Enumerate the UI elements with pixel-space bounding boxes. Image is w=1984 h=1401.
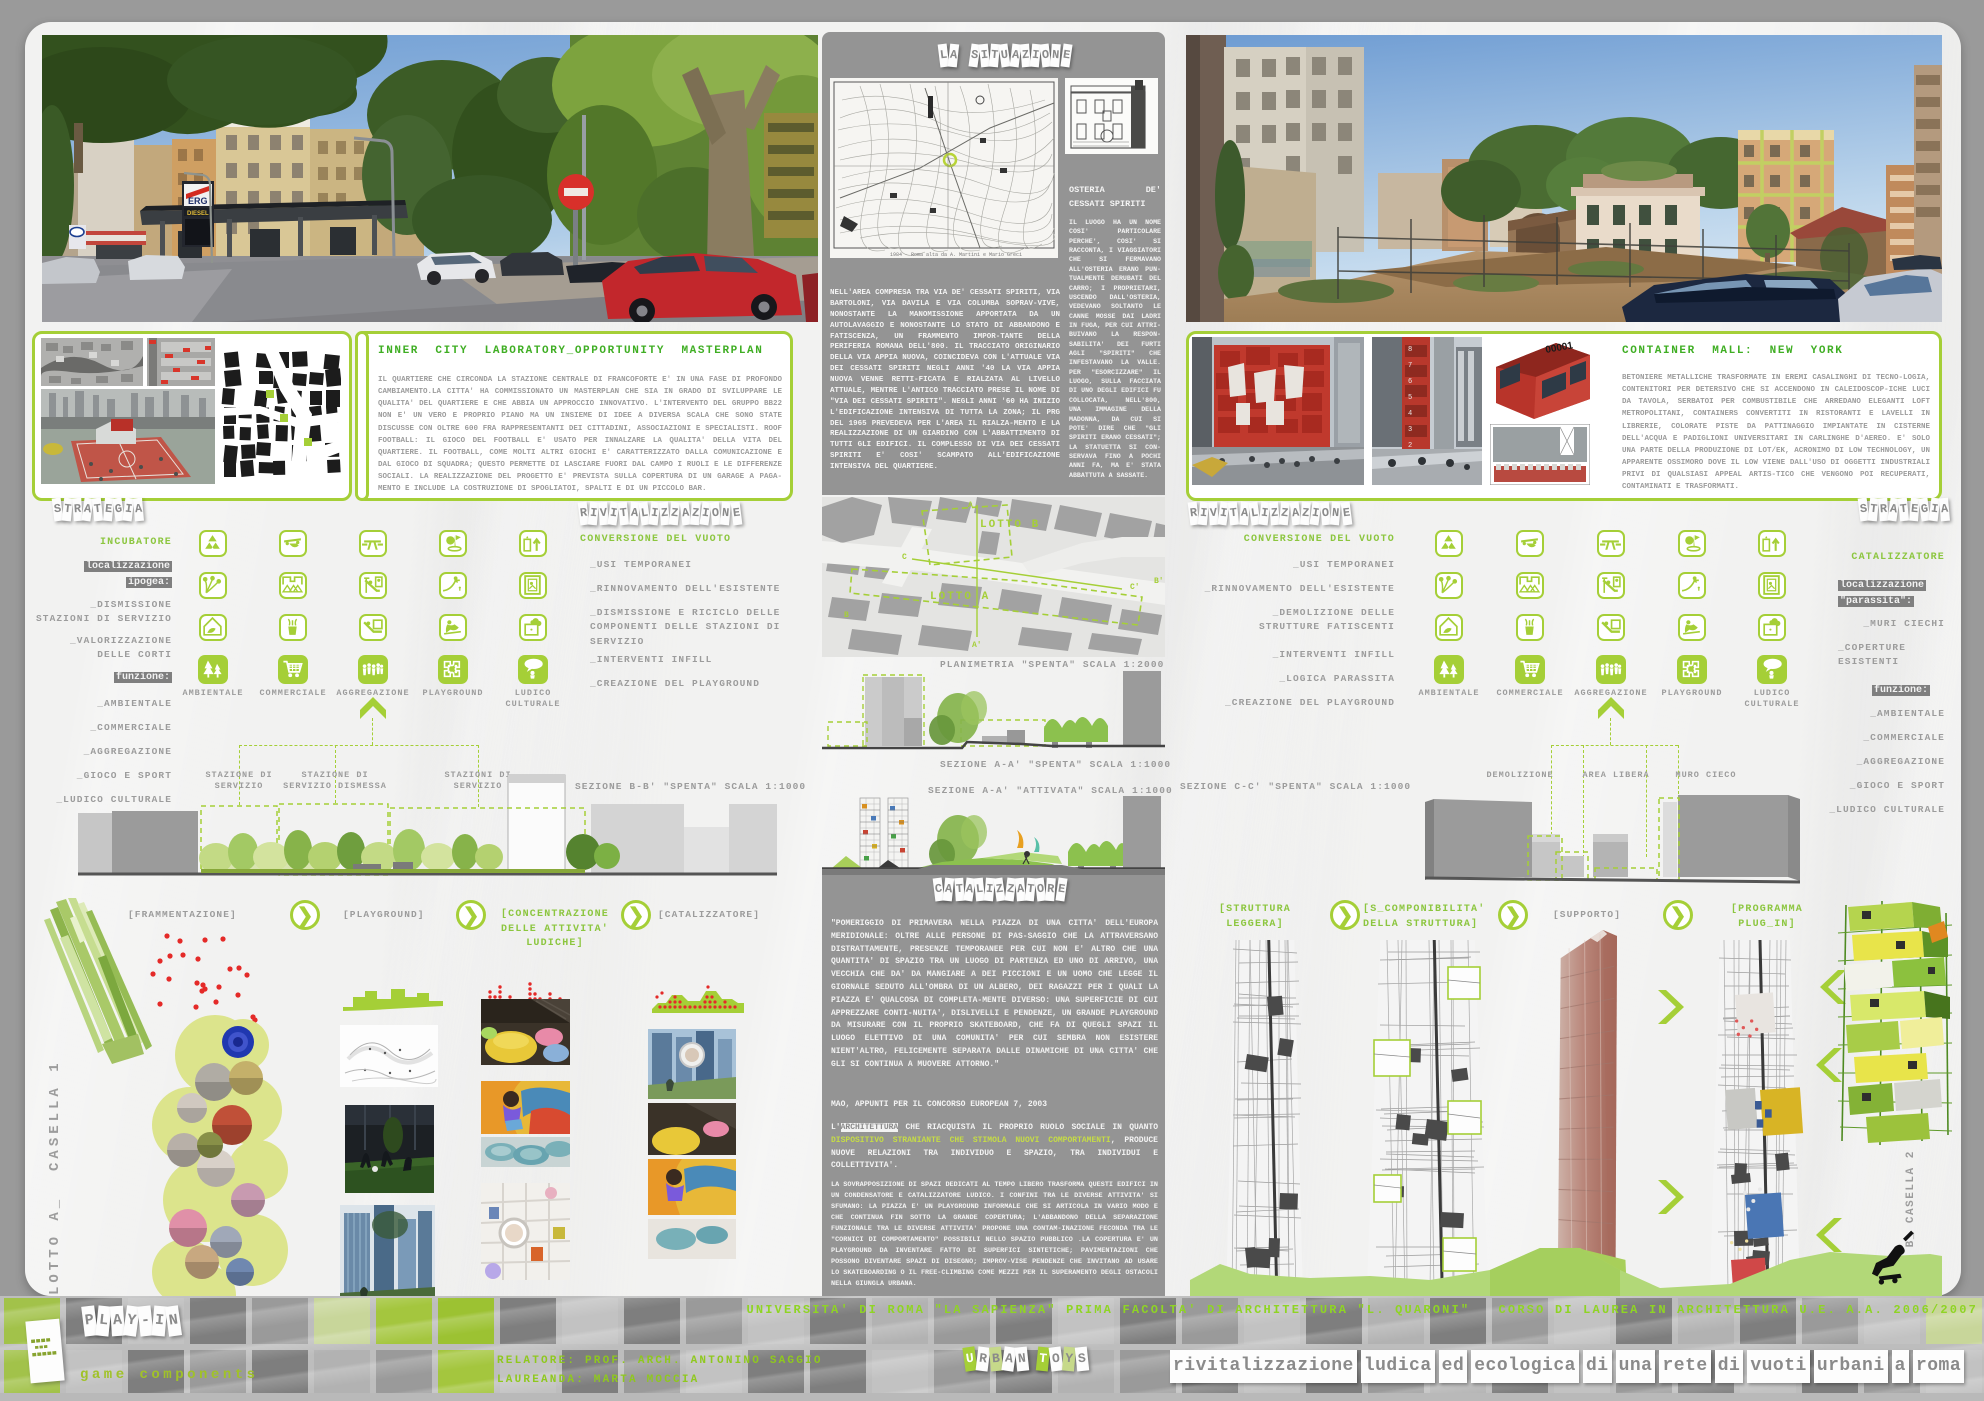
svg-text:LOTTO A: LOTTO A xyxy=(930,591,990,603)
svg-text:A: A xyxy=(968,501,973,510)
svg-text:2: 2 xyxy=(1408,442,1412,450)
svg-text:C': C' xyxy=(1130,583,1140,592)
svg-text:LOTTO B: LOTTO B xyxy=(980,519,1040,531)
svg-text:1984 - Roma alta da A. Martini: 1984 - Roma alta da A. Martini e Mario G… xyxy=(890,252,1022,258)
svg-text:7: 7 xyxy=(1408,362,1412,370)
svg-text:B': B' xyxy=(1154,577,1164,586)
svg-text:A': A' xyxy=(972,641,982,650)
svg-text:6: 6 xyxy=(1408,378,1412,386)
svg-text:8: 8 xyxy=(1408,346,1412,354)
svg-text:3: 3 xyxy=(1408,426,1412,434)
svg-text:4: 4 xyxy=(1408,410,1412,418)
svg-text:5: 5 xyxy=(1408,394,1412,402)
svg-text:C: C xyxy=(902,553,907,562)
svg-text:B: B xyxy=(844,611,849,620)
